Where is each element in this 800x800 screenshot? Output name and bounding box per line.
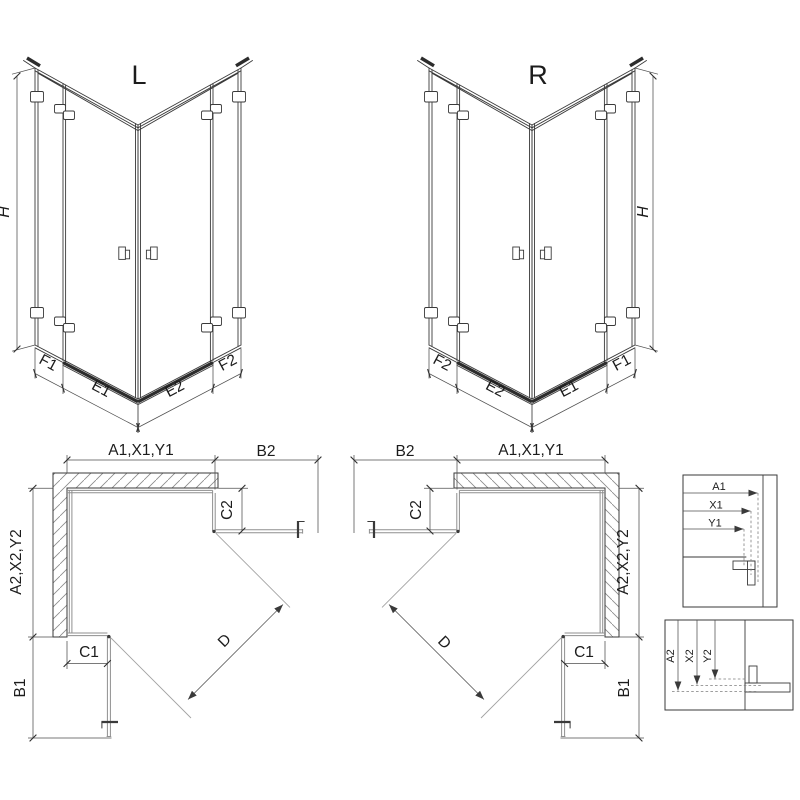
iso-view-left bbox=[12, 58, 253, 433]
plan-view-left bbox=[28, 455, 321, 741]
detail-x1-label: X1 bbox=[709, 500, 722, 512]
f2-dim-label-left: F2 bbox=[216, 351, 240, 375]
detail-box-width bbox=[683, 475, 777, 607]
detail-y1-label: Y1 bbox=[708, 518, 721, 530]
plan-right-c2-label: C2 bbox=[408, 500, 425, 520]
plan-view-right bbox=[351, 455, 644, 741]
plan-right-c1-label: C1 bbox=[574, 644, 594, 661]
detail-a2-label: A2 bbox=[665, 649, 677, 662]
variant-label-right: R bbox=[528, 60, 548, 90]
detail-y2-label: Y2 bbox=[702, 649, 714, 662]
variant-label-left: L bbox=[131, 60, 146, 90]
plan-left-c2-label: C2 bbox=[219, 500, 236, 520]
f1-dim-label-right: F1 bbox=[610, 351, 634, 375]
f1-dim-label-left: F1 bbox=[36, 351, 60, 375]
iso-view-right bbox=[418, 58, 659, 433]
shower-enclosure-technical-drawing: L H F1 E1 E2 F2 R H F2 E2 E1 F1 A1,X1,Y1… bbox=[0, 0, 800, 800]
plan-right-depth-dim-label: A2,X2,Y2 bbox=[615, 529, 632, 595]
plan-left-c1-label: C1 bbox=[79, 644, 99, 661]
plan-left-b2-label: B2 bbox=[257, 443, 276, 460]
plan-right-d-label: D bbox=[434, 633, 454, 653]
detail-x2-label: X2 bbox=[684, 649, 696, 662]
height-dim-label-right: H bbox=[635, 206, 652, 218]
plan-left-b1-label: B1 bbox=[12, 679, 29, 698]
detail-box-depth bbox=[665, 620, 793, 710]
plan-right-width-dim-label: A1,X1,Y1 bbox=[498, 442, 564, 459]
plan-left-depth-dim-label: A2,X2,Y2 bbox=[8, 529, 25, 595]
plan-right-b1-label: B1 bbox=[616, 679, 633, 698]
f2-dim-label-right: F2 bbox=[430, 351, 454, 375]
height-dim-label-left: H bbox=[0, 206, 13, 218]
plan-left-d-label: D bbox=[215, 631, 235, 651]
drawing-canvas: L H F1 E1 E2 F2 R H F2 E2 E1 F1 A1,X1,Y1… bbox=[0, 0, 800, 800]
detail-a1-label: A1 bbox=[712, 481, 725, 493]
plan-left-width-dim-label: A1,X1,Y1 bbox=[108, 442, 174, 459]
plan-right-b2-label: B2 bbox=[396, 443, 415, 460]
